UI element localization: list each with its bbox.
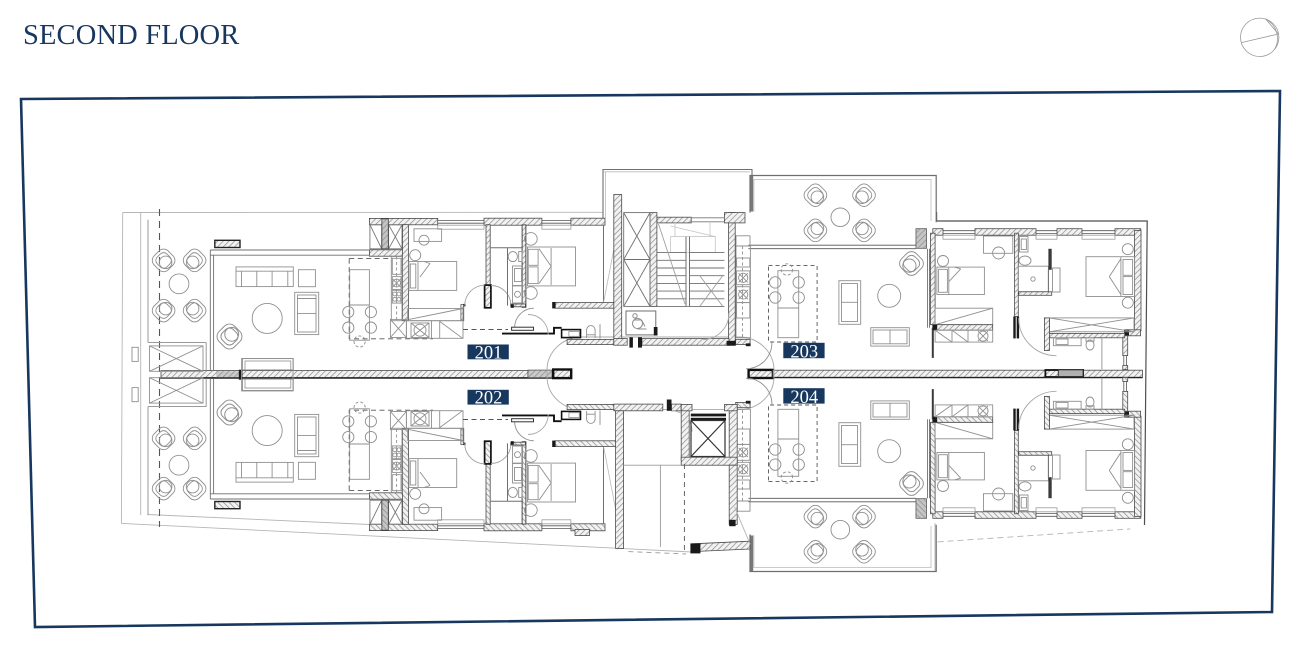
svg-text:SECOND FLOOR: SECOND FLOOR xyxy=(23,20,239,51)
svg-text:203: 203 xyxy=(790,343,818,363)
svg-text:202: 202 xyxy=(475,389,503,409)
svg-text:201: 201 xyxy=(475,343,503,363)
